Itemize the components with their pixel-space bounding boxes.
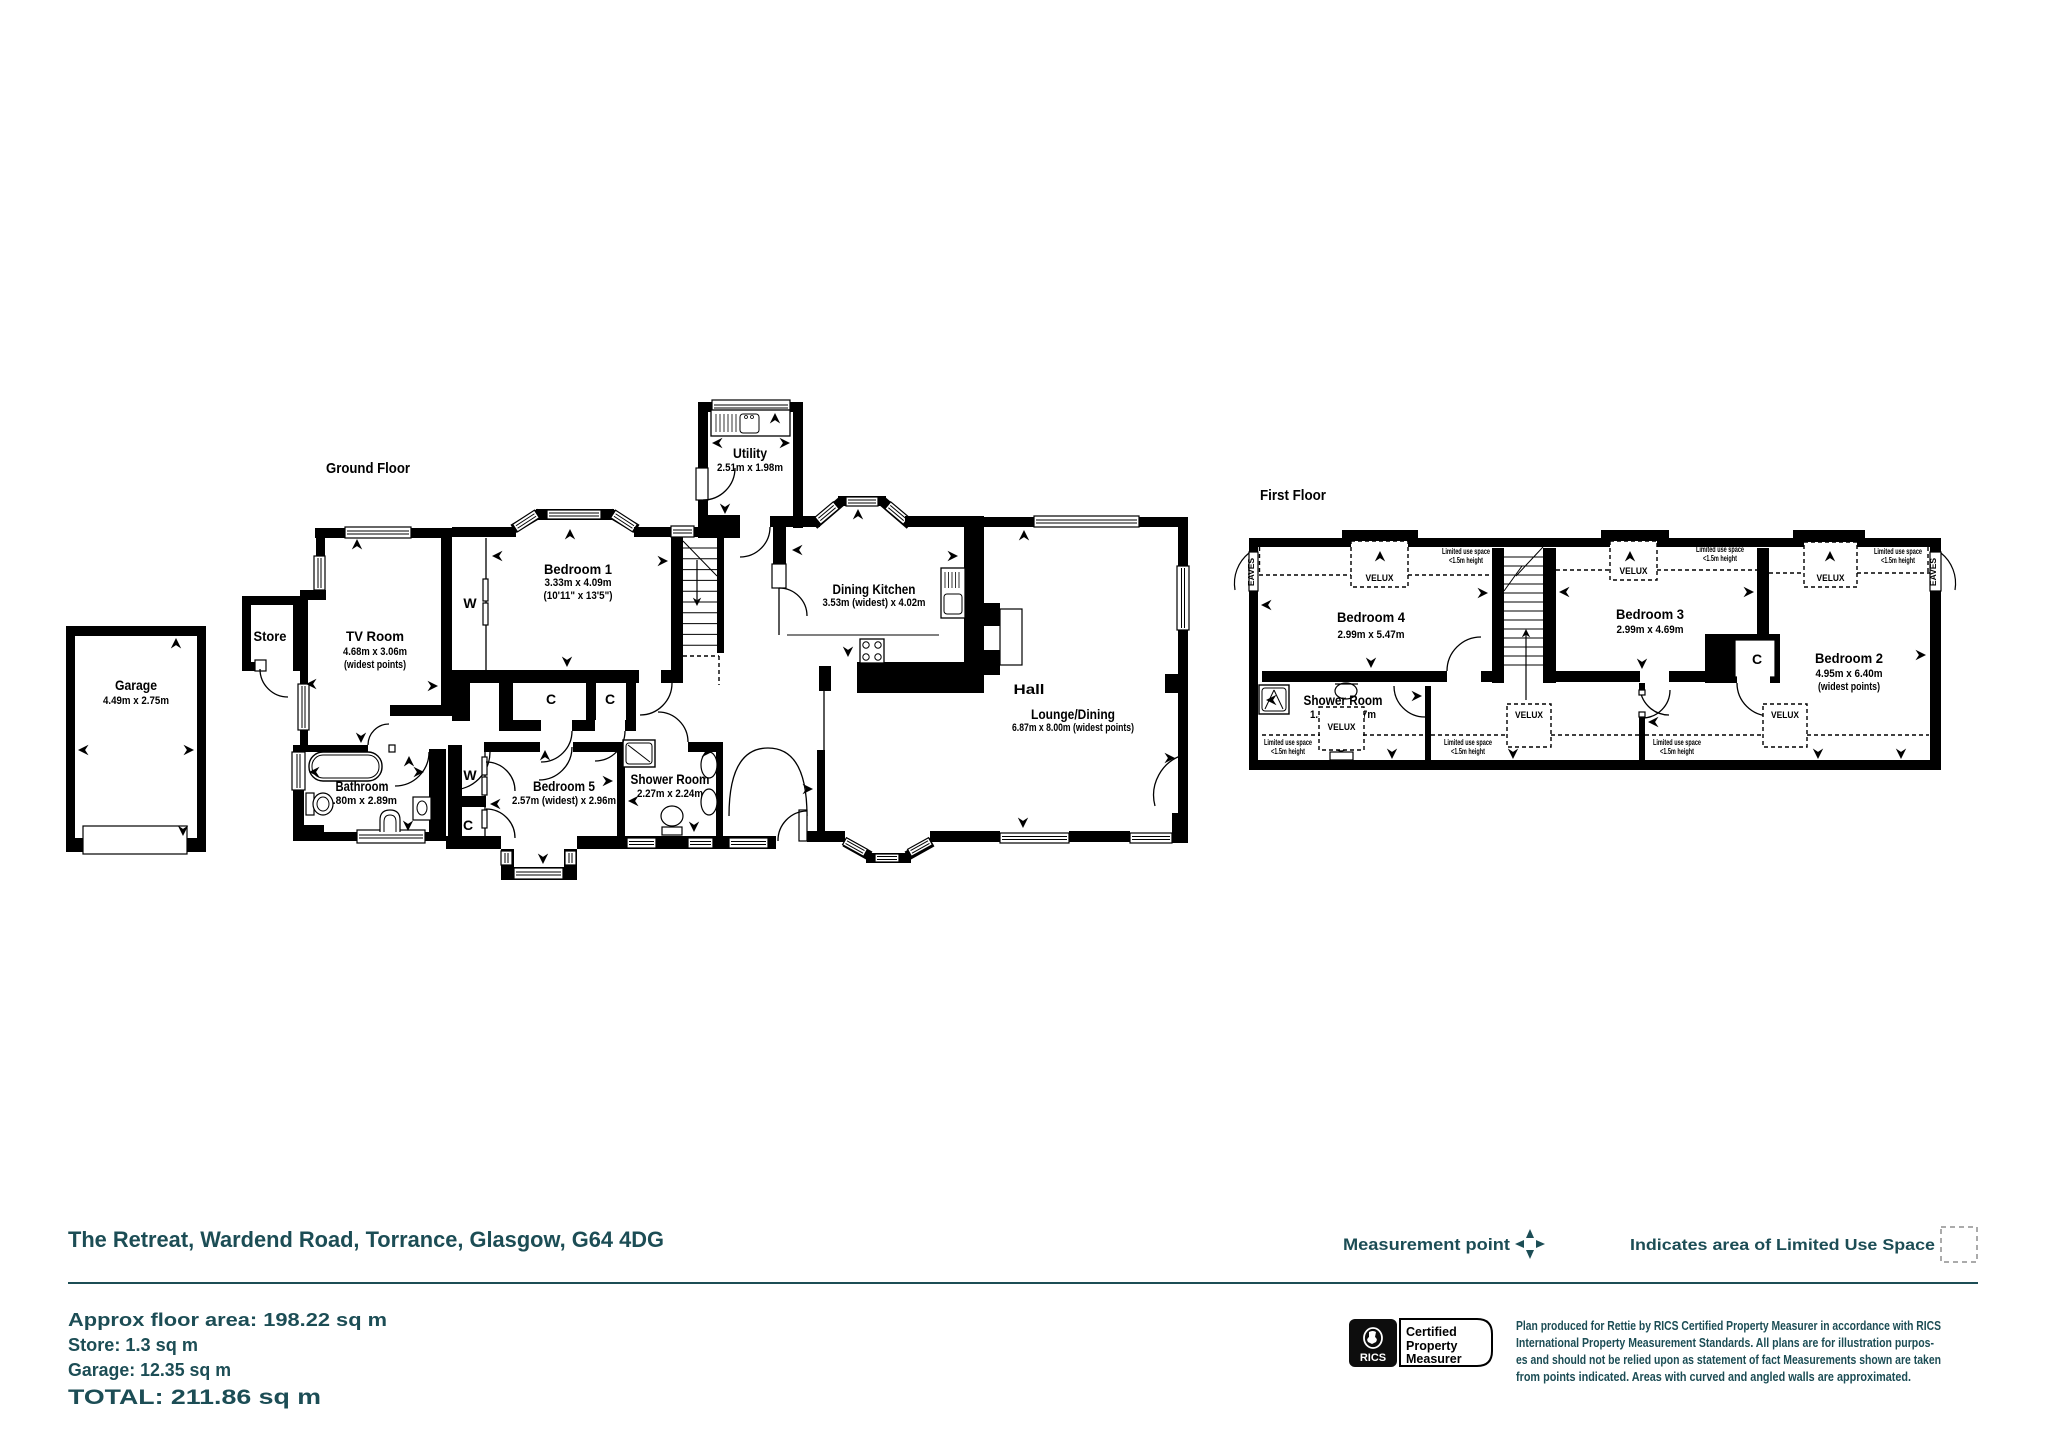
svg-text:EAVES: EAVES (1928, 558, 1938, 587)
svg-text:Plan produced for Rettie by RI: Plan produced for Rettie by RICS Certifi… (1516, 1319, 1941, 1333)
svg-text:2.99m x 4.69m: 2.99m x 4.69m (1617, 624, 1684, 636)
svg-text:C: C (605, 691, 615, 707)
svg-text:C: C (1752, 651, 1762, 667)
svg-text:Bathroom: Bathroom (336, 778, 389, 794)
svg-text:<1.5m height: <1.5m height (1881, 555, 1915, 565)
svg-text:1.80m x 2.89m: 1.80m x 2.89m (327, 795, 397, 807)
svg-text:(widest points): (widest points) (1818, 681, 1880, 693)
svg-text:VELUX: VELUX (1817, 573, 1845, 583)
svg-text:Garage: Garage (115, 677, 157, 693)
svg-text:4.49m x 2.75m: 4.49m x 2.75m (103, 695, 169, 707)
svg-text:Bedroom 3: Bedroom 3 (1616, 606, 1684, 622)
svg-text:First Floor: First Floor (1260, 487, 1326, 504)
svg-text:Bedroom 1: Bedroom 1 (544, 561, 612, 577)
svg-text:VELUX: VELUX (1620, 566, 1648, 576)
svg-text:EAVES: EAVES (1246, 558, 1256, 587)
svg-text:C: C (546, 691, 556, 707)
svg-text:International Property Measur: International Property Measurement Stand… (1516, 1336, 1934, 1350)
svg-text:Certified: Certified (1406, 1325, 1457, 1339)
svg-text:Store: Store (254, 628, 287, 644)
svg-text:3.53m (widest) x 4.02m: 3.53m (widest) x 4.02m (823, 597, 926, 609)
svg-text:Garage: 12.35 sq m: Garage: 12.35 sq m (68, 1360, 231, 1380)
svg-text:Measurement point: Measurement point (1343, 1235, 1510, 1254)
svg-text:W: W (463, 767, 477, 783)
svg-text:VELUX: VELUX (1771, 710, 1799, 720)
svg-text:Shower Room: Shower Room (1304, 692, 1383, 708)
svg-text:Bedroom 5: Bedroom 5 (533, 778, 595, 794)
svg-text:<1.5m height: <1.5m height (1449, 555, 1483, 565)
svg-text:3.33m x 4.09m: 3.33m x 4.09m (545, 577, 612, 589)
svg-text:2.51m x 1.98m: 2.51m x 1.98m (717, 462, 783, 474)
svg-text:<1.5m height: <1.5m height (1660, 746, 1694, 756)
svg-text:Store: 1.3 sq m: Store: 1.3 sq m (68, 1335, 198, 1355)
svg-text:VELUX: VELUX (1515, 710, 1543, 720)
svg-text:<1.5m height: <1.5m height (1451, 746, 1485, 756)
svg-text:Property: Property (1406, 1339, 1457, 1353)
svg-text:Measurer: Measurer (1406, 1352, 1462, 1366)
svg-text:4.68m x 3.06m: 4.68m x 3.06m (343, 646, 407, 658)
svg-text:2.57m (widest) x 2.96m: 2.57m (widest) x 2.96m (512, 795, 616, 807)
svg-text:(widest points): (widest points) (344, 659, 406, 671)
svg-text:Ground Floor: Ground Floor (326, 460, 410, 477)
svg-text:C: C (463, 817, 473, 833)
svg-text:6.87m x 8.00m (widest points): 6.87m x 8.00m (widest points) (1012, 722, 1134, 734)
svg-text:Bedroom 2: Bedroom 2 (1815, 650, 1883, 666)
svg-text:The Retreat, Wardend Road, Tor: The Retreat, Wardend Road, Torrance, Gla… (68, 1227, 664, 1252)
svg-text:4.95m x 6.40m: 4.95m x 6.40m (1816, 668, 1883, 680)
svg-text:Bedroom 4: Bedroom 4 (1337, 609, 1405, 625)
svg-text:Lounge/Dining: Lounge/Dining (1031, 706, 1115, 722)
svg-text:W: W (463, 595, 477, 611)
svg-text:<1.5m height: <1.5m height (1703, 553, 1737, 563)
svg-text:RICS: RICS (1360, 1352, 1386, 1364)
svg-text:from points indicated. Areas w: from points indicated. Areas with curved… (1516, 1370, 1911, 1384)
svg-text:2.27m x 2.24m: 2.27m x 2.24m (637, 788, 703, 800)
svg-text:TV Room: TV Room (346, 628, 404, 644)
svg-text:VELUX: VELUX (1328, 722, 1356, 732)
svg-text:Dining Kitchen: Dining Kitchen (833, 581, 916, 597)
svg-text:Hall: Hall (1014, 681, 1045, 697)
svg-text:<1.5m height: <1.5m height (1271, 746, 1305, 756)
svg-text:Utility: Utility (733, 445, 767, 461)
svg-text:(10'11" x 13'5"): (10'11" x 13'5") (544, 590, 613, 602)
svg-text:Indicates area of Limited Use: Indicates area of Limited Use Space (1630, 1237, 1935, 1254)
svg-text:VELUX: VELUX (1366, 573, 1394, 583)
svg-text:TOTAL: 211.86 sq m: TOTAL: 211.86 sq m (68, 1385, 321, 1409)
svg-text:Shower Room: Shower Room (631, 771, 710, 787)
svg-text:2.99m x 5.47m: 2.99m x 5.47m (1338, 629, 1405, 641)
svg-text:Approx floor area: 198.22 sq m: Approx floor area: 198.22 sq m (68, 1310, 387, 1330)
svg-text:es and should not be relied up: es and should not be relied upon as stat… (1516, 1353, 1941, 1367)
